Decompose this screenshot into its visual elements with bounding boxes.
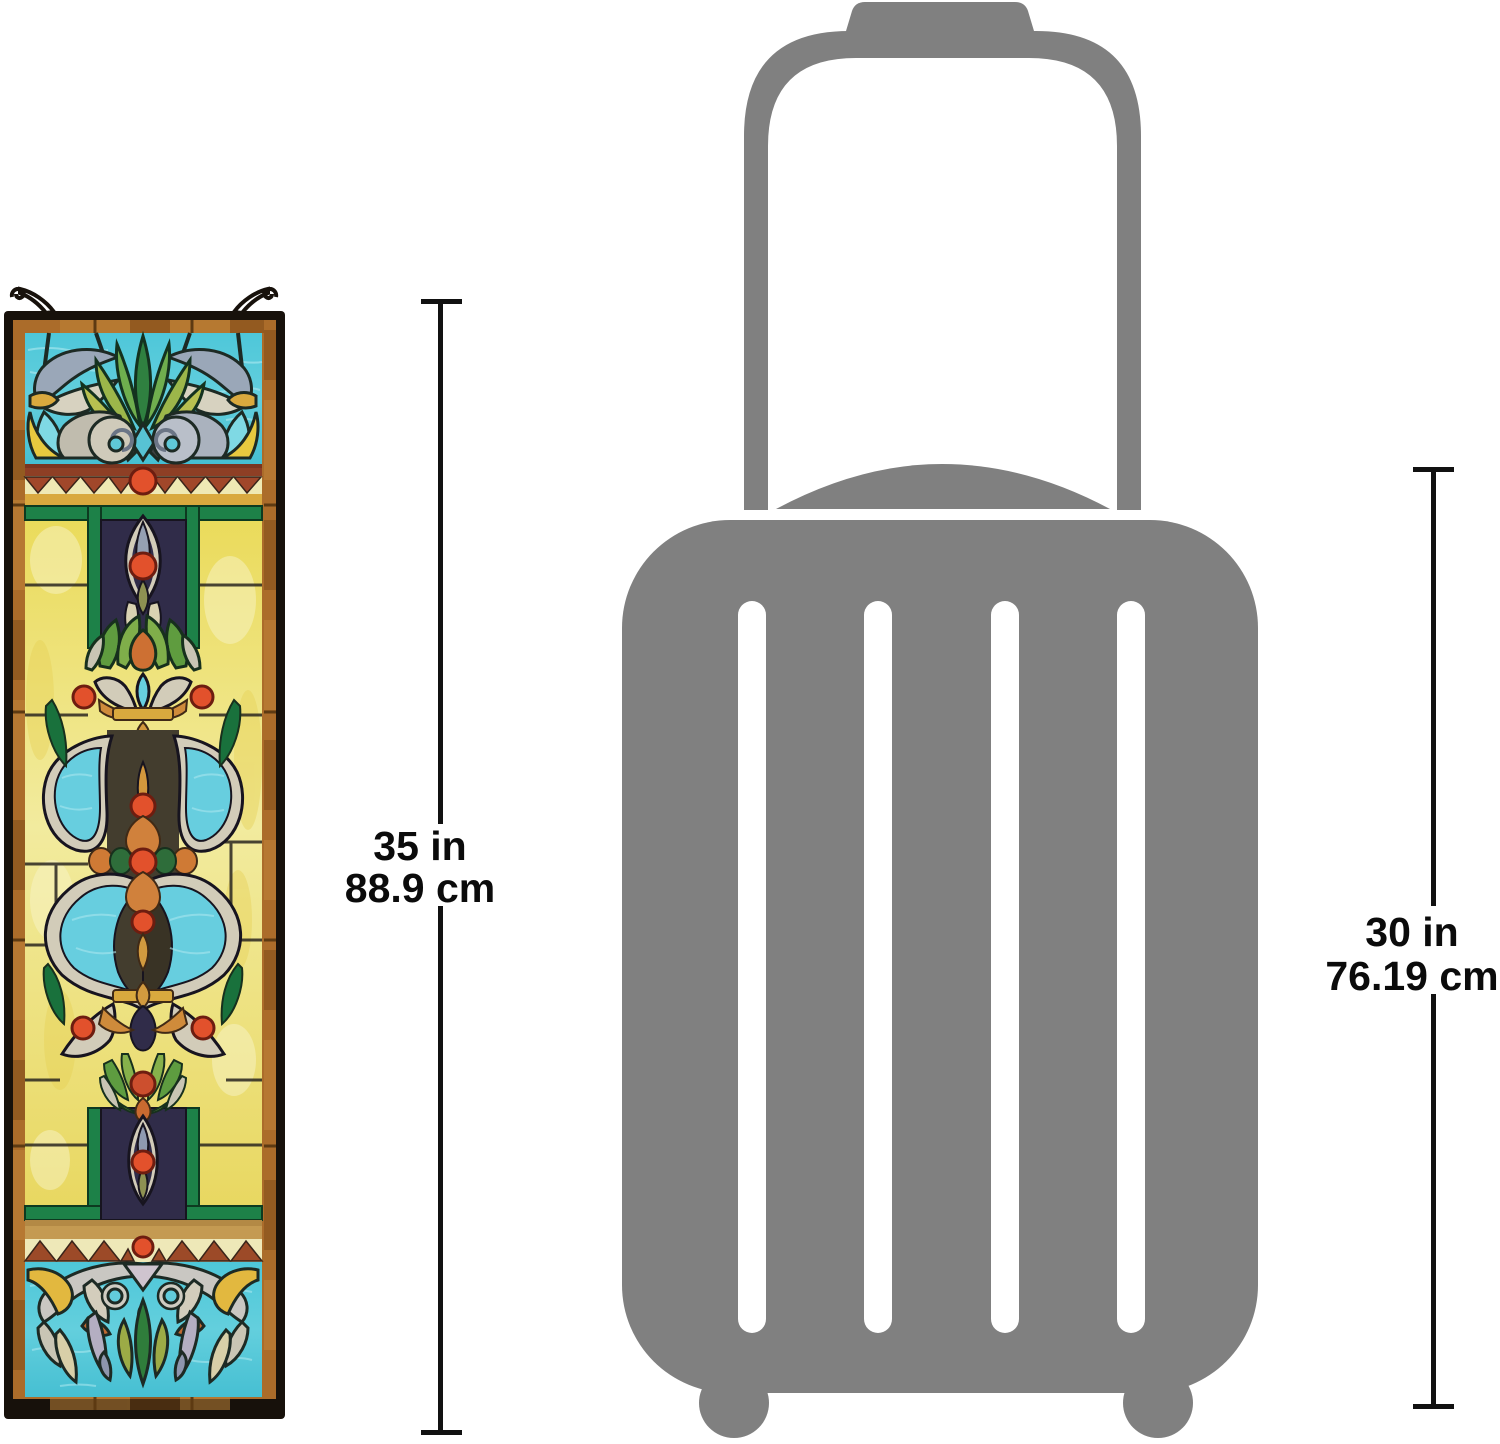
- svg-text:76.19 cm: 76.19 cm: [1325, 953, 1498, 999]
- svg-text:35 in: 35 in: [373, 823, 466, 869]
- svg-text:30 in: 30 in: [1365, 909, 1458, 955]
- svg-text:88.9 cm: 88.9 cm: [345, 865, 495, 911]
